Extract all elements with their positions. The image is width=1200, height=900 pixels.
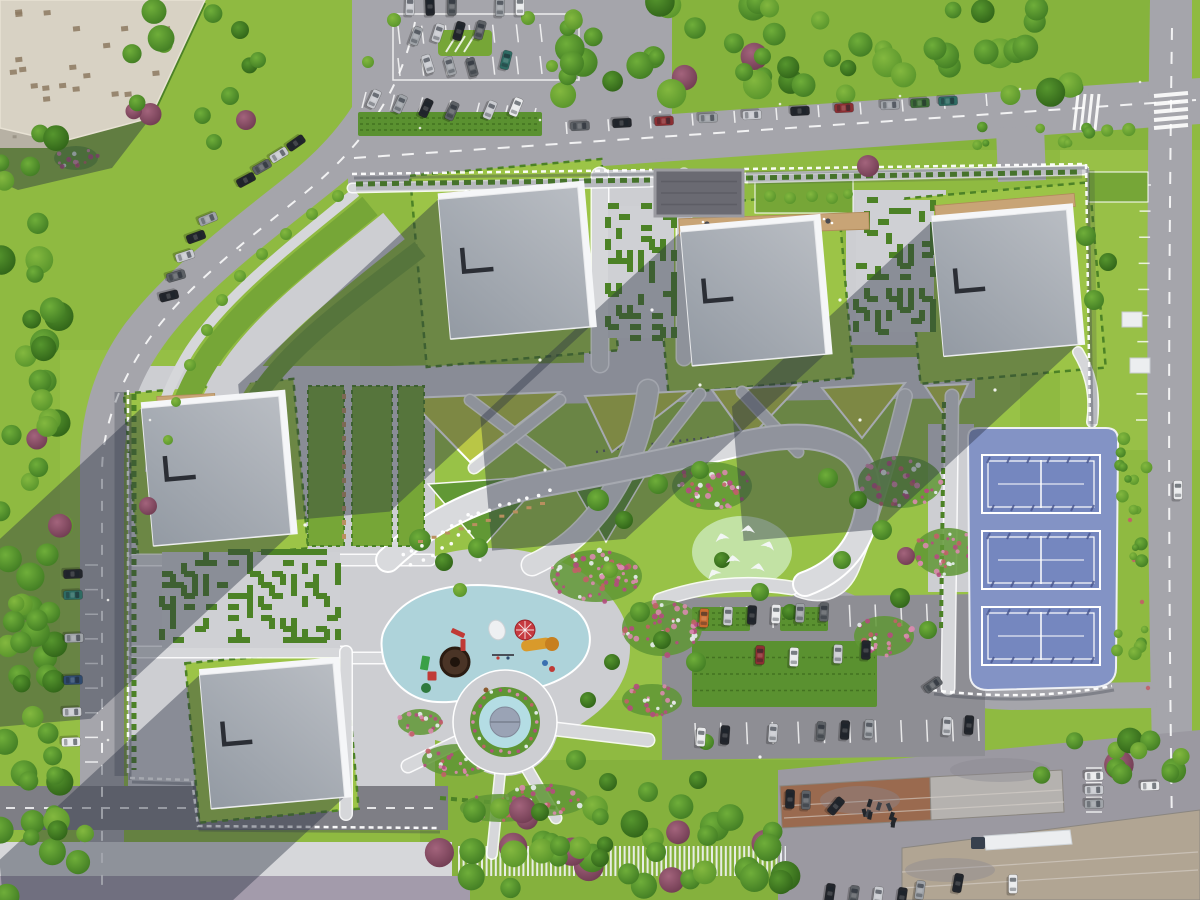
terrace-chair <box>409 563 413 567</box>
car <box>62 631 83 643</box>
flower <box>865 619 870 624</box>
street-lamp <box>1139 81 1142 84</box>
flower <box>953 545 958 550</box>
flower <box>646 625 650 629</box>
parking-stall-line <box>978 719 979 741</box>
car-windshield <box>666 117 670 124</box>
tree <box>1012 35 1038 61</box>
swing-seat <box>506 656 509 659</box>
fountain-flower <box>482 696 486 700</box>
flower <box>904 634 909 639</box>
car <box>652 114 674 126</box>
car-rear-window <box>700 621 707 625</box>
flower <box>671 624 677 630</box>
pedestrian <box>838 298 841 301</box>
car-roof-highlight <box>803 798 808 802</box>
road <box>352 0 672 186</box>
car-roof-highlight <box>1091 801 1095 806</box>
tree <box>1132 544 1139 551</box>
flower <box>628 634 633 639</box>
car-roof-highlight <box>866 727 871 731</box>
street-lamp <box>107 739 110 742</box>
cafe-table <box>825 218 830 223</box>
tree <box>43 746 62 765</box>
play-element <box>542 660 548 666</box>
flower <box>924 489 929 494</box>
flower <box>887 632 893 638</box>
play-element <box>484 688 489 693</box>
flower <box>934 491 937 494</box>
flower <box>689 629 694 634</box>
car-roof-highlight <box>944 724 949 728</box>
car-roof-highlight <box>899 895 905 900</box>
tree <box>977 122 988 133</box>
tree <box>1035 124 1045 134</box>
canopy <box>1130 358 1150 373</box>
tree <box>740 863 769 892</box>
flower <box>644 703 649 708</box>
fountain-flower <box>524 697 528 701</box>
flower <box>957 541 962 546</box>
car <box>1082 769 1103 781</box>
car-roof-highlight <box>427 4 432 8</box>
terrace-chair <box>420 544 424 548</box>
tree <box>666 820 690 844</box>
flower <box>577 798 580 801</box>
tree <box>604 654 620 670</box>
car-windshield <box>624 119 628 126</box>
terrace-chair <box>401 553 405 557</box>
flower <box>590 554 596 560</box>
car-rear-window <box>863 653 870 657</box>
bench <box>418 540 423 543</box>
flower <box>608 551 612 555</box>
flower <box>659 613 664 618</box>
fountain-flower <box>530 703 534 707</box>
cafe-chair <box>823 218 826 221</box>
tree <box>560 51 584 75</box>
flower <box>665 698 670 703</box>
tree <box>840 60 856 76</box>
car-roof-highlight <box>749 613 754 617</box>
flower <box>952 562 955 565</box>
tree <box>724 33 744 53</box>
car-roof-highlight <box>70 571 74 576</box>
car <box>59 735 80 747</box>
car-rear-window <box>791 660 798 664</box>
window <box>10 69 17 75</box>
flower <box>634 575 638 579</box>
flower <box>589 561 594 566</box>
tree <box>769 870 793 894</box>
tree <box>40 297 66 323</box>
car-windshield <box>835 648 842 652</box>
tree <box>216 294 228 306</box>
tree <box>1084 290 1104 310</box>
fountain-flower <box>517 749 521 753</box>
car-roof-highlight <box>851 893 857 898</box>
terrace-chair <box>525 496 529 500</box>
flower <box>600 553 605 558</box>
car-windshield <box>802 107 806 114</box>
car-roof-highlight <box>70 677 74 682</box>
car <box>936 94 958 106</box>
flower <box>633 636 639 642</box>
tree <box>459 838 485 864</box>
tree <box>872 520 892 540</box>
fountain-flower <box>482 745 486 749</box>
tree <box>306 208 318 220</box>
car <box>718 725 730 747</box>
flower <box>624 699 629 704</box>
car-windshield <box>863 644 870 648</box>
flower <box>875 633 878 636</box>
flower <box>917 538 921 542</box>
car <box>745 605 757 627</box>
car-windshield <box>922 99 926 106</box>
window <box>15 9 22 15</box>
tree <box>23 829 39 845</box>
flower <box>410 732 415 737</box>
parking-stall-line <box>952 719 953 741</box>
tree <box>602 71 623 92</box>
flower <box>727 480 733 486</box>
tree <box>39 838 66 865</box>
tree <box>824 50 842 68</box>
tree <box>811 11 829 29</box>
car-roof-highlight <box>725 614 730 618</box>
car-windshield <box>821 606 828 610</box>
tree <box>648 474 668 494</box>
flower-bed <box>550 550 642 602</box>
tree <box>649 49 665 65</box>
flower <box>939 563 942 566</box>
car-roof-highlight <box>842 728 847 732</box>
car <box>61 588 82 600</box>
car <box>962 715 974 737</box>
tree <box>171 397 181 407</box>
tree <box>10 632 32 654</box>
terrace-chair <box>441 530 445 534</box>
terrace-chair <box>476 511 480 515</box>
car-windshield <box>754 111 758 118</box>
bench <box>526 506 531 509</box>
fountain-flower <box>534 711 538 715</box>
car-roof-highlight <box>497 5 502 9</box>
building-4-roof <box>199 663 344 808</box>
tree <box>8 596 24 612</box>
car-roof-highlight <box>698 735 703 739</box>
tree <box>332 190 344 202</box>
flower <box>686 488 692 494</box>
fountain-flower <box>524 745 528 749</box>
tree <box>31 389 53 411</box>
tree <box>1129 552 1137 560</box>
flower <box>965 533 969 537</box>
flower <box>441 772 446 777</box>
flower <box>729 505 732 508</box>
tree <box>584 28 603 47</box>
car-windshield <box>846 104 850 111</box>
flower <box>705 493 711 499</box>
tree <box>735 63 753 81</box>
flower <box>918 561 924 567</box>
tree <box>48 514 72 538</box>
tree <box>580 692 596 708</box>
bench <box>432 536 437 539</box>
car-roof-highlight <box>791 655 796 659</box>
street-lamp <box>239 249 242 252</box>
window <box>59 83 66 89</box>
canopy <box>1122 312 1142 327</box>
tree <box>1124 475 1132 483</box>
flower <box>857 623 861 627</box>
terrace-chair <box>458 520 462 524</box>
tree <box>971 0 995 23</box>
tree <box>163 435 173 445</box>
tree <box>751 583 769 601</box>
flower <box>698 483 703 488</box>
window <box>83 73 90 79</box>
flower <box>692 641 695 644</box>
car-rear-window <box>817 734 824 738</box>
parking-stall-line <box>734 111 735 123</box>
car-windshield <box>773 608 780 612</box>
flower <box>952 538 955 541</box>
car <box>514 0 525 18</box>
car-roof-highlight <box>619 120 623 125</box>
tree <box>184 359 196 371</box>
flower <box>604 580 608 584</box>
gravel-speckle <box>13 135 17 138</box>
flower <box>515 788 519 792</box>
car-roof-highlight <box>945 98 949 103</box>
flower <box>601 583 605 587</box>
car-roof-highlight <box>917 888 923 893</box>
tree <box>826 192 838 204</box>
car-rear-window <box>796 616 803 620</box>
flower <box>661 713 664 716</box>
tree <box>221 87 239 105</box>
window <box>111 91 118 97</box>
car-windshield <box>427 0 434 4</box>
building-2-roof <box>438 187 590 339</box>
tree <box>500 878 520 898</box>
car-rear-window <box>837 105 841 112</box>
flower <box>519 785 525 791</box>
car-roof-highlight <box>821 610 826 614</box>
tree <box>47 820 67 840</box>
tree <box>463 800 486 823</box>
layer-tennis-courts <box>968 428 1118 690</box>
flower <box>672 701 676 705</box>
car-roof-highlight <box>818 729 823 733</box>
tree <box>1141 626 1149 634</box>
tree <box>453 583 467 597</box>
car-roof-highlight <box>887 102 891 107</box>
flower <box>570 790 575 795</box>
flower <box>921 496 924 499</box>
flower <box>581 597 585 601</box>
flower <box>557 800 561 804</box>
tree <box>501 840 528 867</box>
flower <box>944 565 947 568</box>
bench <box>459 527 464 530</box>
car-rear-window <box>769 736 776 740</box>
tree <box>31 336 56 361</box>
car-rear-window <box>701 115 705 122</box>
tree <box>27 213 48 234</box>
flower <box>664 710 668 714</box>
tree <box>36 543 59 566</box>
wall-shadow <box>356 182 650 186</box>
car-rear-window <box>407 9 414 13</box>
tree <box>148 25 175 52</box>
car-rear-window <box>1087 801 1091 808</box>
car <box>766 723 778 745</box>
tree <box>546 60 558 72</box>
flower <box>557 565 562 570</box>
lion-mane <box>545 637 559 651</box>
flower <box>657 619 662 624</box>
flower <box>666 686 670 690</box>
car-roof-highlight <box>827 891 833 896</box>
car-roof-highlight <box>797 611 802 615</box>
building-3 <box>680 214 833 367</box>
car-roof-highlight <box>705 115 709 120</box>
flower <box>598 593 601 596</box>
car-windshield <box>582 122 586 129</box>
fountain-flower <box>499 749 503 753</box>
tree <box>19 771 38 790</box>
flower <box>597 567 600 570</box>
car <box>1172 481 1183 502</box>
tree <box>206 134 222 150</box>
play-element <box>421 683 431 693</box>
flower <box>674 606 680 612</box>
car-rear-window <box>913 100 917 107</box>
car-roof-highlight <box>1010 883 1015 887</box>
car-rear-window <box>820 615 827 619</box>
tree <box>1119 463 1128 472</box>
tree <box>689 771 707 789</box>
car-roof-highlight <box>875 894 881 899</box>
car-rear-window <box>835 657 842 661</box>
tree <box>26 265 43 282</box>
swing-seat <box>496 656 499 659</box>
flower <box>437 751 441 755</box>
parking-stall-line <box>849 605 850 627</box>
car-rear-window <box>803 803 810 807</box>
car <box>610 116 632 128</box>
flower <box>551 566 554 569</box>
car-roof-highlight <box>797 108 801 113</box>
tree <box>691 461 709 479</box>
flower <box>938 480 943 485</box>
car-rear-window <box>865 732 872 736</box>
flower <box>873 636 877 640</box>
window <box>152 70 159 76</box>
flower <box>573 562 579 568</box>
car-roof-highlight <box>661 118 665 123</box>
building-1-roof <box>141 396 291 546</box>
tree <box>1101 124 1113 136</box>
flower <box>710 474 715 479</box>
car <box>787 647 799 668</box>
parking-stall-line <box>776 108 777 120</box>
tree <box>890 588 910 608</box>
car-rear-window <box>427 9 434 13</box>
tree <box>43 125 69 151</box>
flower <box>424 716 429 721</box>
flower <box>733 490 738 495</box>
bench <box>445 532 450 535</box>
window <box>30 83 37 89</box>
flower <box>1128 518 1132 522</box>
flower <box>889 651 892 654</box>
car-rear-window <box>65 709 69 716</box>
car-roof-highlight <box>841 105 845 110</box>
car-windshield <box>698 731 705 735</box>
car <box>694 727 706 749</box>
car-windshield <box>950 97 954 104</box>
flower <box>913 499 918 504</box>
car-roof-highlight <box>70 592 74 597</box>
flower <box>690 482 694 486</box>
tree <box>1111 763 1132 784</box>
flower <box>643 699 647 703</box>
flower <box>923 500 927 504</box>
flower <box>550 789 555 794</box>
flower <box>893 619 897 623</box>
car-rear-window <box>943 729 950 733</box>
tree <box>1135 554 1148 567</box>
car <box>1138 779 1159 791</box>
flower <box>435 723 439 727</box>
window <box>15 57 22 63</box>
flower <box>591 581 595 585</box>
flower <box>645 708 650 713</box>
tree <box>22 310 41 329</box>
flower <box>916 555 921 560</box>
car-rear-window <box>697 740 704 744</box>
car <box>493 0 505 19</box>
flower <box>589 575 593 579</box>
car-rear-window <box>66 592 70 599</box>
flower <box>660 691 665 696</box>
car-windshield <box>76 635 80 642</box>
pedestrian <box>993 388 996 391</box>
bench <box>540 502 545 505</box>
tree <box>1141 462 1153 474</box>
car-windshield <box>966 719 973 723</box>
window <box>19 67 26 73</box>
tree <box>435 553 453 571</box>
car <box>740 108 762 120</box>
flower <box>406 724 409 727</box>
flower <box>562 585 565 588</box>
tree <box>1128 647 1141 660</box>
cafe-chair <box>831 222 834 225</box>
tree <box>1 425 21 445</box>
car-windshield <box>944 720 951 724</box>
car-roof-highlight <box>1091 787 1095 792</box>
tree <box>1117 432 1130 445</box>
terrace-chair <box>449 542 453 546</box>
tree <box>564 11 582 29</box>
flower <box>634 579 638 583</box>
flower <box>722 470 727 475</box>
